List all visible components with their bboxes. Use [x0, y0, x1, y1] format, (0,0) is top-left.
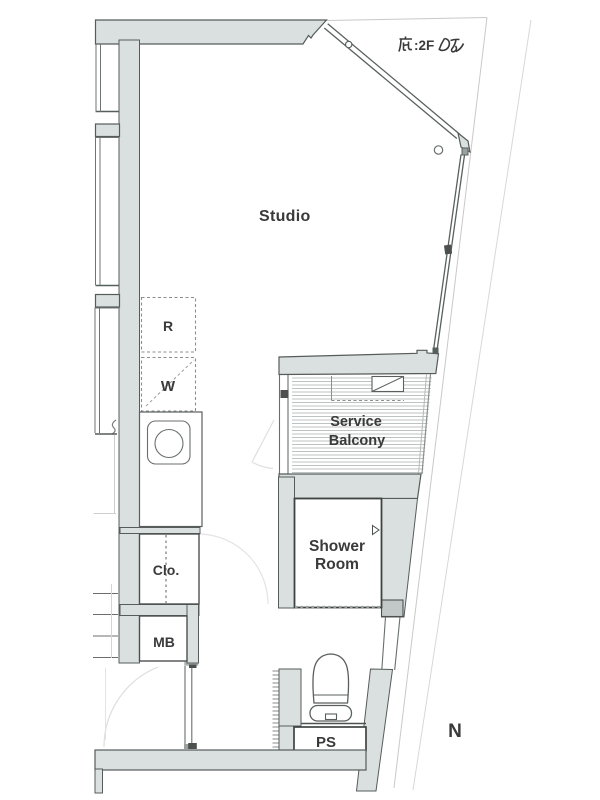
svg-text:W: W — [161, 378, 176, 395]
svg-text:Balcony: Balcony — [329, 433, 385, 449]
svg-text:Service: Service — [330, 414, 382, 430]
svg-text::2F: :2F — [414, 38, 434, 53]
svg-text:N: N — [448, 721, 462, 742]
svg-text:MB: MB — [153, 634, 175, 650]
svg-text:R: R — [163, 318, 173, 334]
svg-text:Clo.: Clo. — [153, 562, 179, 578]
svg-text:Room: Room — [315, 556, 359, 573]
svg-text:Shower: Shower — [309, 538, 365, 555]
svg-text:PS: PS — [316, 734, 336, 751]
svg-text:Studio: Studio — [259, 208, 311, 225]
